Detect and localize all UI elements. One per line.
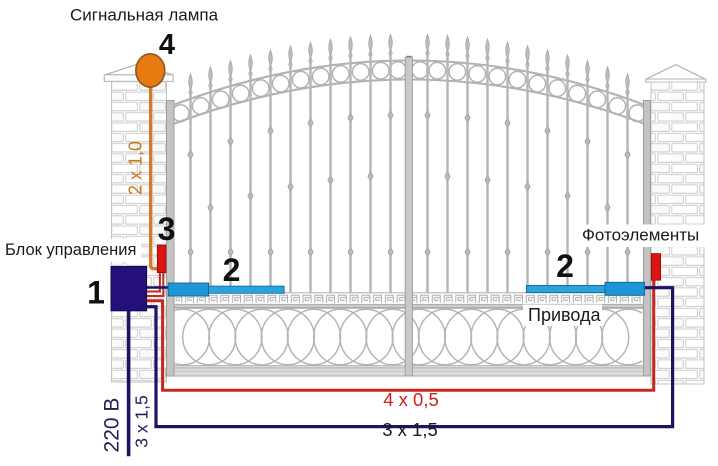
svg-text:2: 2 xyxy=(556,248,574,284)
svg-text:2: 2 xyxy=(223,252,241,288)
svg-text:2 х 1,0: 2 х 1,0 xyxy=(126,141,146,195)
svg-text:4: 4 xyxy=(159,29,175,61)
svg-text:Фотоэлементы: Фотоэлементы xyxy=(582,226,699,245)
svg-text:3 х 1,5: 3 х 1,5 xyxy=(132,395,152,448)
svg-text:Сигнальная лампа: Сигнальная лампа xyxy=(70,5,219,24)
svg-text:4 х 0,5: 4 х 0,5 xyxy=(383,389,439,410)
svg-text:Привода: Привода xyxy=(528,305,601,325)
svg-text:1: 1 xyxy=(87,274,105,310)
svg-text:Блок управления: Блок управления xyxy=(5,241,136,259)
svg-text:3 х 1,5: 3 х 1,5 xyxy=(382,419,438,440)
svg-text:220 В: 220 В xyxy=(101,398,124,453)
svg-text:3: 3 xyxy=(158,211,176,247)
